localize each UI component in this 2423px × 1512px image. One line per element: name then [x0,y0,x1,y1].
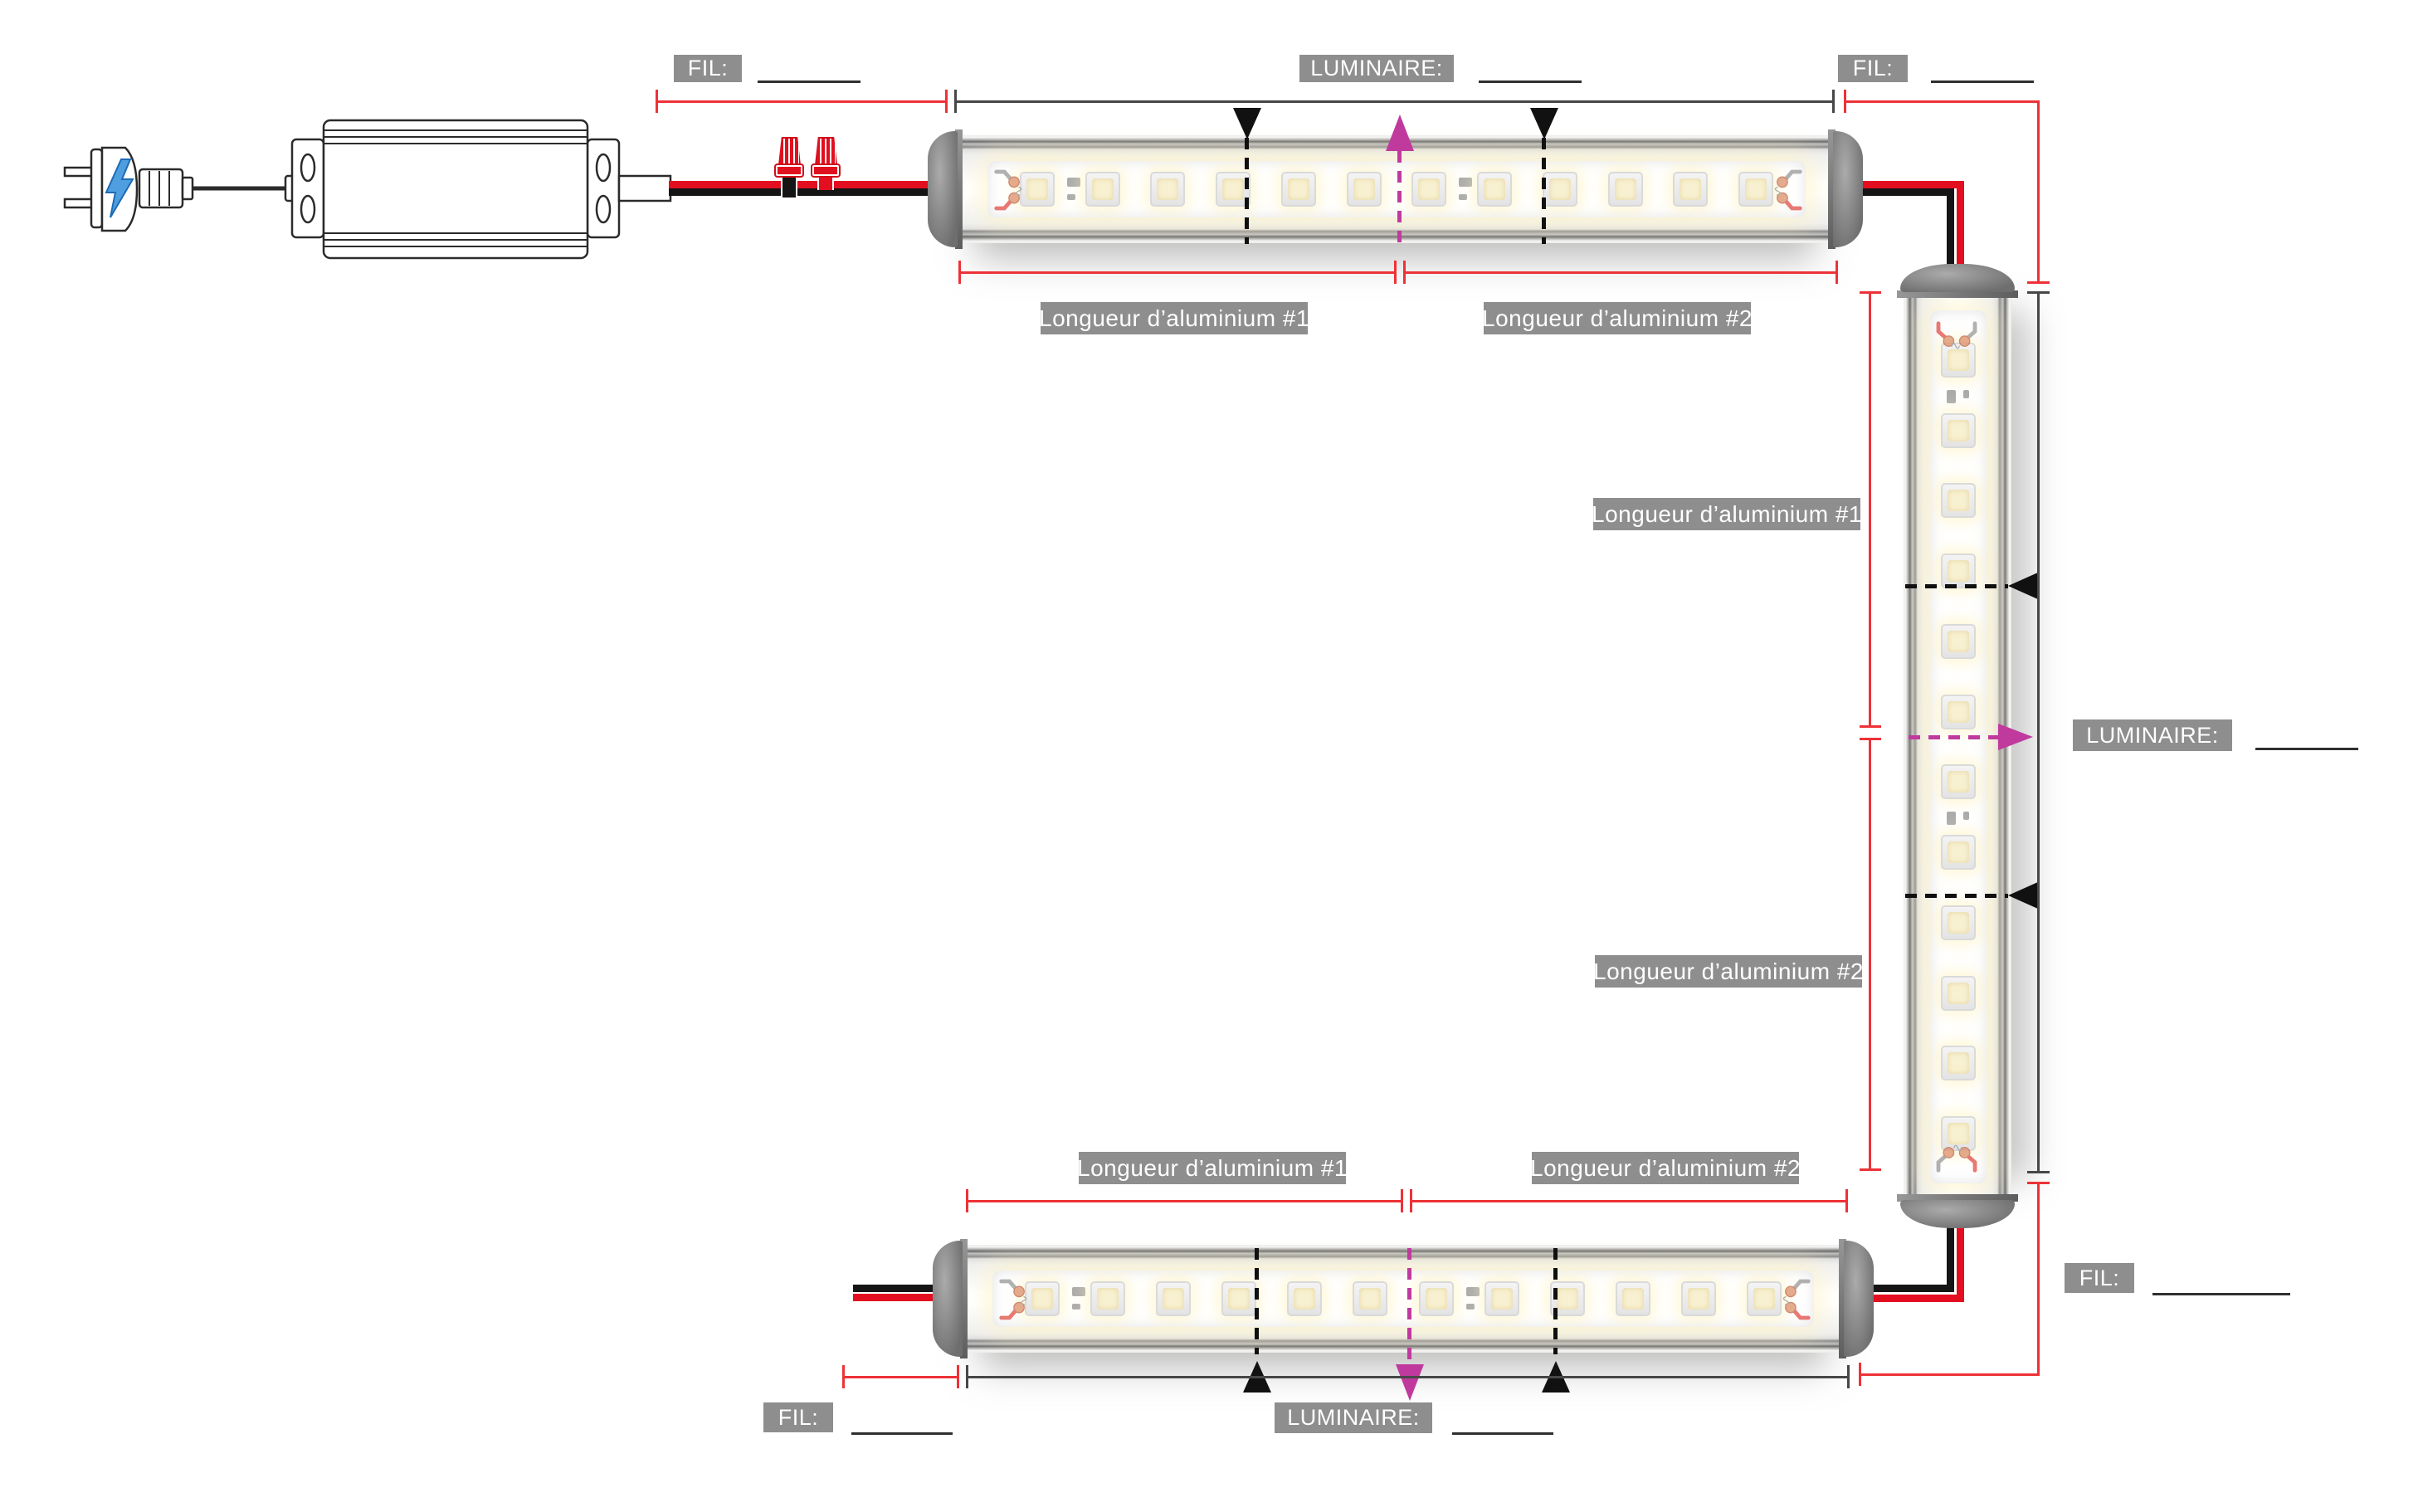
dim-tick [966,1189,968,1212]
led-chip [1941,624,1976,659]
dim-tick [1836,261,1838,284]
led-chip [1941,835,1976,870]
alu1-label-text: Longueur d’aluminium #1 [1077,1155,1348,1182]
resistor-mark [1963,390,1969,398]
joint-arrow [1998,724,2033,750]
end-cap [933,1241,963,1357]
led-strip [1930,310,1987,1183]
dim-line-alu2-bottom [1411,1200,1847,1202]
dim-line-fil-corner-bottom [1860,1373,2040,1376]
luminaire-blank-field-right[interactable] [2255,748,2358,750]
alu1-label-text: Longueur d’aluminium #1 [1039,305,1309,332]
luminaire-label-text: LUMINAIRE: [1287,1405,1420,1431]
dim-tick [1410,1189,1412,1212]
fil-label-text: FIL: [2079,1266,2120,1291]
joint-mark-line [1407,1248,1411,1363]
fil-label-text: FIL: [1853,56,1894,81]
dim-tick [1847,1365,1850,1388]
plug-faceplate [91,149,102,227]
resistor-mark [1963,812,1969,820]
led-chip [1941,764,1976,799]
strip-end-wires [989,163,1036,217]
wire-red [1859,181,1964,188]
dim-line-fil-bottom-left [843,1376,958,1378]
dim-tick [945,90,948,113]
alu2-label-text: Longueur d’aluminium #2 [1530,1155,1801,1182]
dim-tick [1832,90,1835,113]
alu1-label-text: Longueur d’aluminium #1 [1592,501,1862,528]
dim-tick [1860,1168,1881,1171]
wire-black [1859,188,1954,196]
dim-tick [1860,738,1881,740]
resistor-mark [1072,1287,1085,1296]
led-chip [1347,172,1382,207]
strip-end-wires [1929,1131,1984,1178]
alu1-label-top: Longueur d’aluminium #1 [1041,302,1308,334]
fil-blank-field-bottom-left[interactable] [851,1432,953,1435]
cut-mark-line [1905,894,2008,898]
luminaire-blank-field-top[interactable] [1479,80,1582,83]
cut-mark-line [1542,138,1546,244]
wire-black [669,188,939,196]
led-chip [1477,172,1512,207]
fil-label-text: FIL: [688,56,729,81]
dim-tick [1844,90,1846,113]
fil-blank-field-top-right[interactable] [1931,80,2034,83]
dim-line-fil-top-left [656,100,947,103]
led-chip [1941,976,1976,1011]
strip-end-wires [1761,163,1807,217]
led-chip [1941,1046,1976,1080]
alu2-label-bottom: Longueur d’aluminium #2 [1532,1152,1799,1184]
dim-tick [1859,1363,1861,1386]
wire-nut-icon [778,137,801,165]
led-chip [1221,1281,1256,1316]
dim-tick [957,1365,959,1388]
dim-tick [842,1365,845,1388]
led-chip [1150,172,1185,207]
alu2-label-top: Longueur d’aluminium #2 [1484,302,1751,334]
joint-mark-line [1397,151,1402,244]
led-chip [1281,172,1316,207]
led-chip [1156,1281,1191,1316]
wire-red [1869,1295,1964,1302]
dim-line-alu1-right [1869,292,1871,728]
dim-tick [1845,1189,1848,1212]
luminaire-label-text: LUMINAIRE: [1310,56,1443,81]
diagram-canvas: FIL: LUMINAIRE: FIL: Longueur d’aluminiu… [0,0,2423,1512]
dim-tick [1394,261,1397,284]
plug-strain-relief [139,169,183,207]
wire-nut-icon [815,137,837,165]
driver-body [324,120,587,258]
mount-hole [301,196,314,222]
led-chip [1543,172,1577,207]
strip-end-wires [994,1272,1041,1327]
output-stub [619,176,670,201]
alu2-label-right: Longueur d’aluminium #2 [1595,955,1862,988]
dim-line-alu1-top [959,271,1396,274]
led-chip [1941,413,1976,448]
resistor-mark [1459,194,1467,200]
dim-tick [2027,1182,2050,1184]
fil-label-bottom-left: FIL: [763,1402,833,1432]
led-chip [1419,1281,1454,1316]
led-chip [1941,554,1976,588]
joint-arrow [1386,115,1414,151]
resistor-mark [1947,390,1956,403]
alu2-label-text: Longueur d’aluminium #2 [1593,958,1864,985]
end-cap [1900,264,2015,292]
dim-tick [2027,281,2050,284]
led-chip [1090,1281,1125,1316]
mount-hole [597,196,610,222]
power-supply-unit [63,116,677,299]
led-chip [1941,905,1976,940]
resistor-mark [1459,178,1472,187]
led-strip [987,161,1806,217]
dim-line-luminaire-top [955,100,1834,103]
led-chip [1411,172,1446,207]
dim-tick [656,90,658,113]
resistor-mark [1072,1304,1080,1310]
fil-label-top-right: FIL: [1838,55,1908,82]
wire-red [669,181,939,188]
cut-mark-line [1905,584,2008,588]
dim-line-luminaire-bottom [967,1376,1849,1378]
resistor-mark [1466,1304,1475,1310]
dim-tick [2027,1171,2050,1173]
led-chip [1287,1281,1322,1316]
resistor-mark [1466,1287,1480,1296]
cut-mark-line [1553,1248,1558,1354]
luminaire-label-text: LUMINAIRE: [2086,723,2219,749]
led-chip [1608,172,1643,207]
led-chip [1616,1281,1650,1316]
dim-tick [2027,291,2050,294]
led-chip [1941,695,1976,729]
wire-black [1869,1285,1954,1292]
led-chip [1353,1281,1387,1316]
cut-mark-triangle [1233,108,1261,139]
luminaire-label-top: LUMINAIRE: [1299,55,1454,82]
dim-line-fil-top-right [1845,100,2040,103]
wire-nut-base [776,165,802,176]
dim-tick [1860,291,1881,294]
dim-tick [966,1365,968,1388]
dim-line-luminaire-right [2037,292,2040,1173]
luminaire-label-right: LUMINAIRE: [2073,719,2232,751]
end-cap [928,131,958,247]
dim-line-alu1-bottom [967,1200,1402,1202]
cut-mark-line [1245,138,1249,244]
led-chip [1085,172,1120,207]
dim-line-fil-bottom-right [2037,1183,2040,1376]
wire-nut-base [812,165,839,176]
strip-end-wires [1769,1272,1816,1327]
dim-tick [954,90,957,113]
cut-mark-triangle [2008,881,2040,910]
led-chip [1673,172,1708,207]
resistor-mark [1947,812,1956,825]
cut-mark-triangle [2008,572,2040,600]
dim-line-alu2-right [1869,739,1871,1171]
led-chip [1681,1281,1716,1316]
mount-hole [597,154,610,181]
mount-hole [301,154,314,181]
cut-mark-line [1255,1248,1259,1354]
dim-line-fil-corner [2037,100,2040,283]
fil-label-bottom-right: FIL: [2065,1263,2134,1293]
fil-label-top-left: FIL: [674,55,742,82]
resistor-mark [1067,178,1080,187]
dim-tick [1403,261,1406,284]
fil-label-text: FIL: [778,1405,819,1431]
dim-tick [1860,725,1881,728]
dim-tick [1401,1189,1403,1212]
luminaire-blank-field-bottom[interactable] [1452,1432,1553,1435]
dim-tick [958,261,961,284]
end-cap [1900,1200,2015,1228]
strip-end-wires [1929,316,1984,363]
joint-arrow [1396,1364,1424,1401]
fil-blank-field-top-left[interactable] [758,80,860,83]
end-cap [1833,131,1863,247]
luminaire-label-bottom: LUMINAIRE: [1275,1402,1432,1433]
led-chip [1485,1281,1519,1316]
alu1-label-bottom: Longueur d’aluminium #1 [1079,1152,1346,1184]
cut-mark-triangle [1530,108,1558,139]
alu1-label-right: Longueur d’aluminium #1 [1593,498,1860,530]
joint-mark-line [1909,735,1998,739]
dim-line-alu2-top [1404,271,1837,274]
alu2-label-text: Longueur d’aluminium #2 [1482,305,1753,332]
end-cap [1844,1241,1874,1357]
led-strip [992,1271,1814,1327]
resistor-mark [1067,194,1075,200]
fil-blank-field-bottom-right[interactable] [2152,1293,2290,1295]
led-chip [1941,483,1976,518]
